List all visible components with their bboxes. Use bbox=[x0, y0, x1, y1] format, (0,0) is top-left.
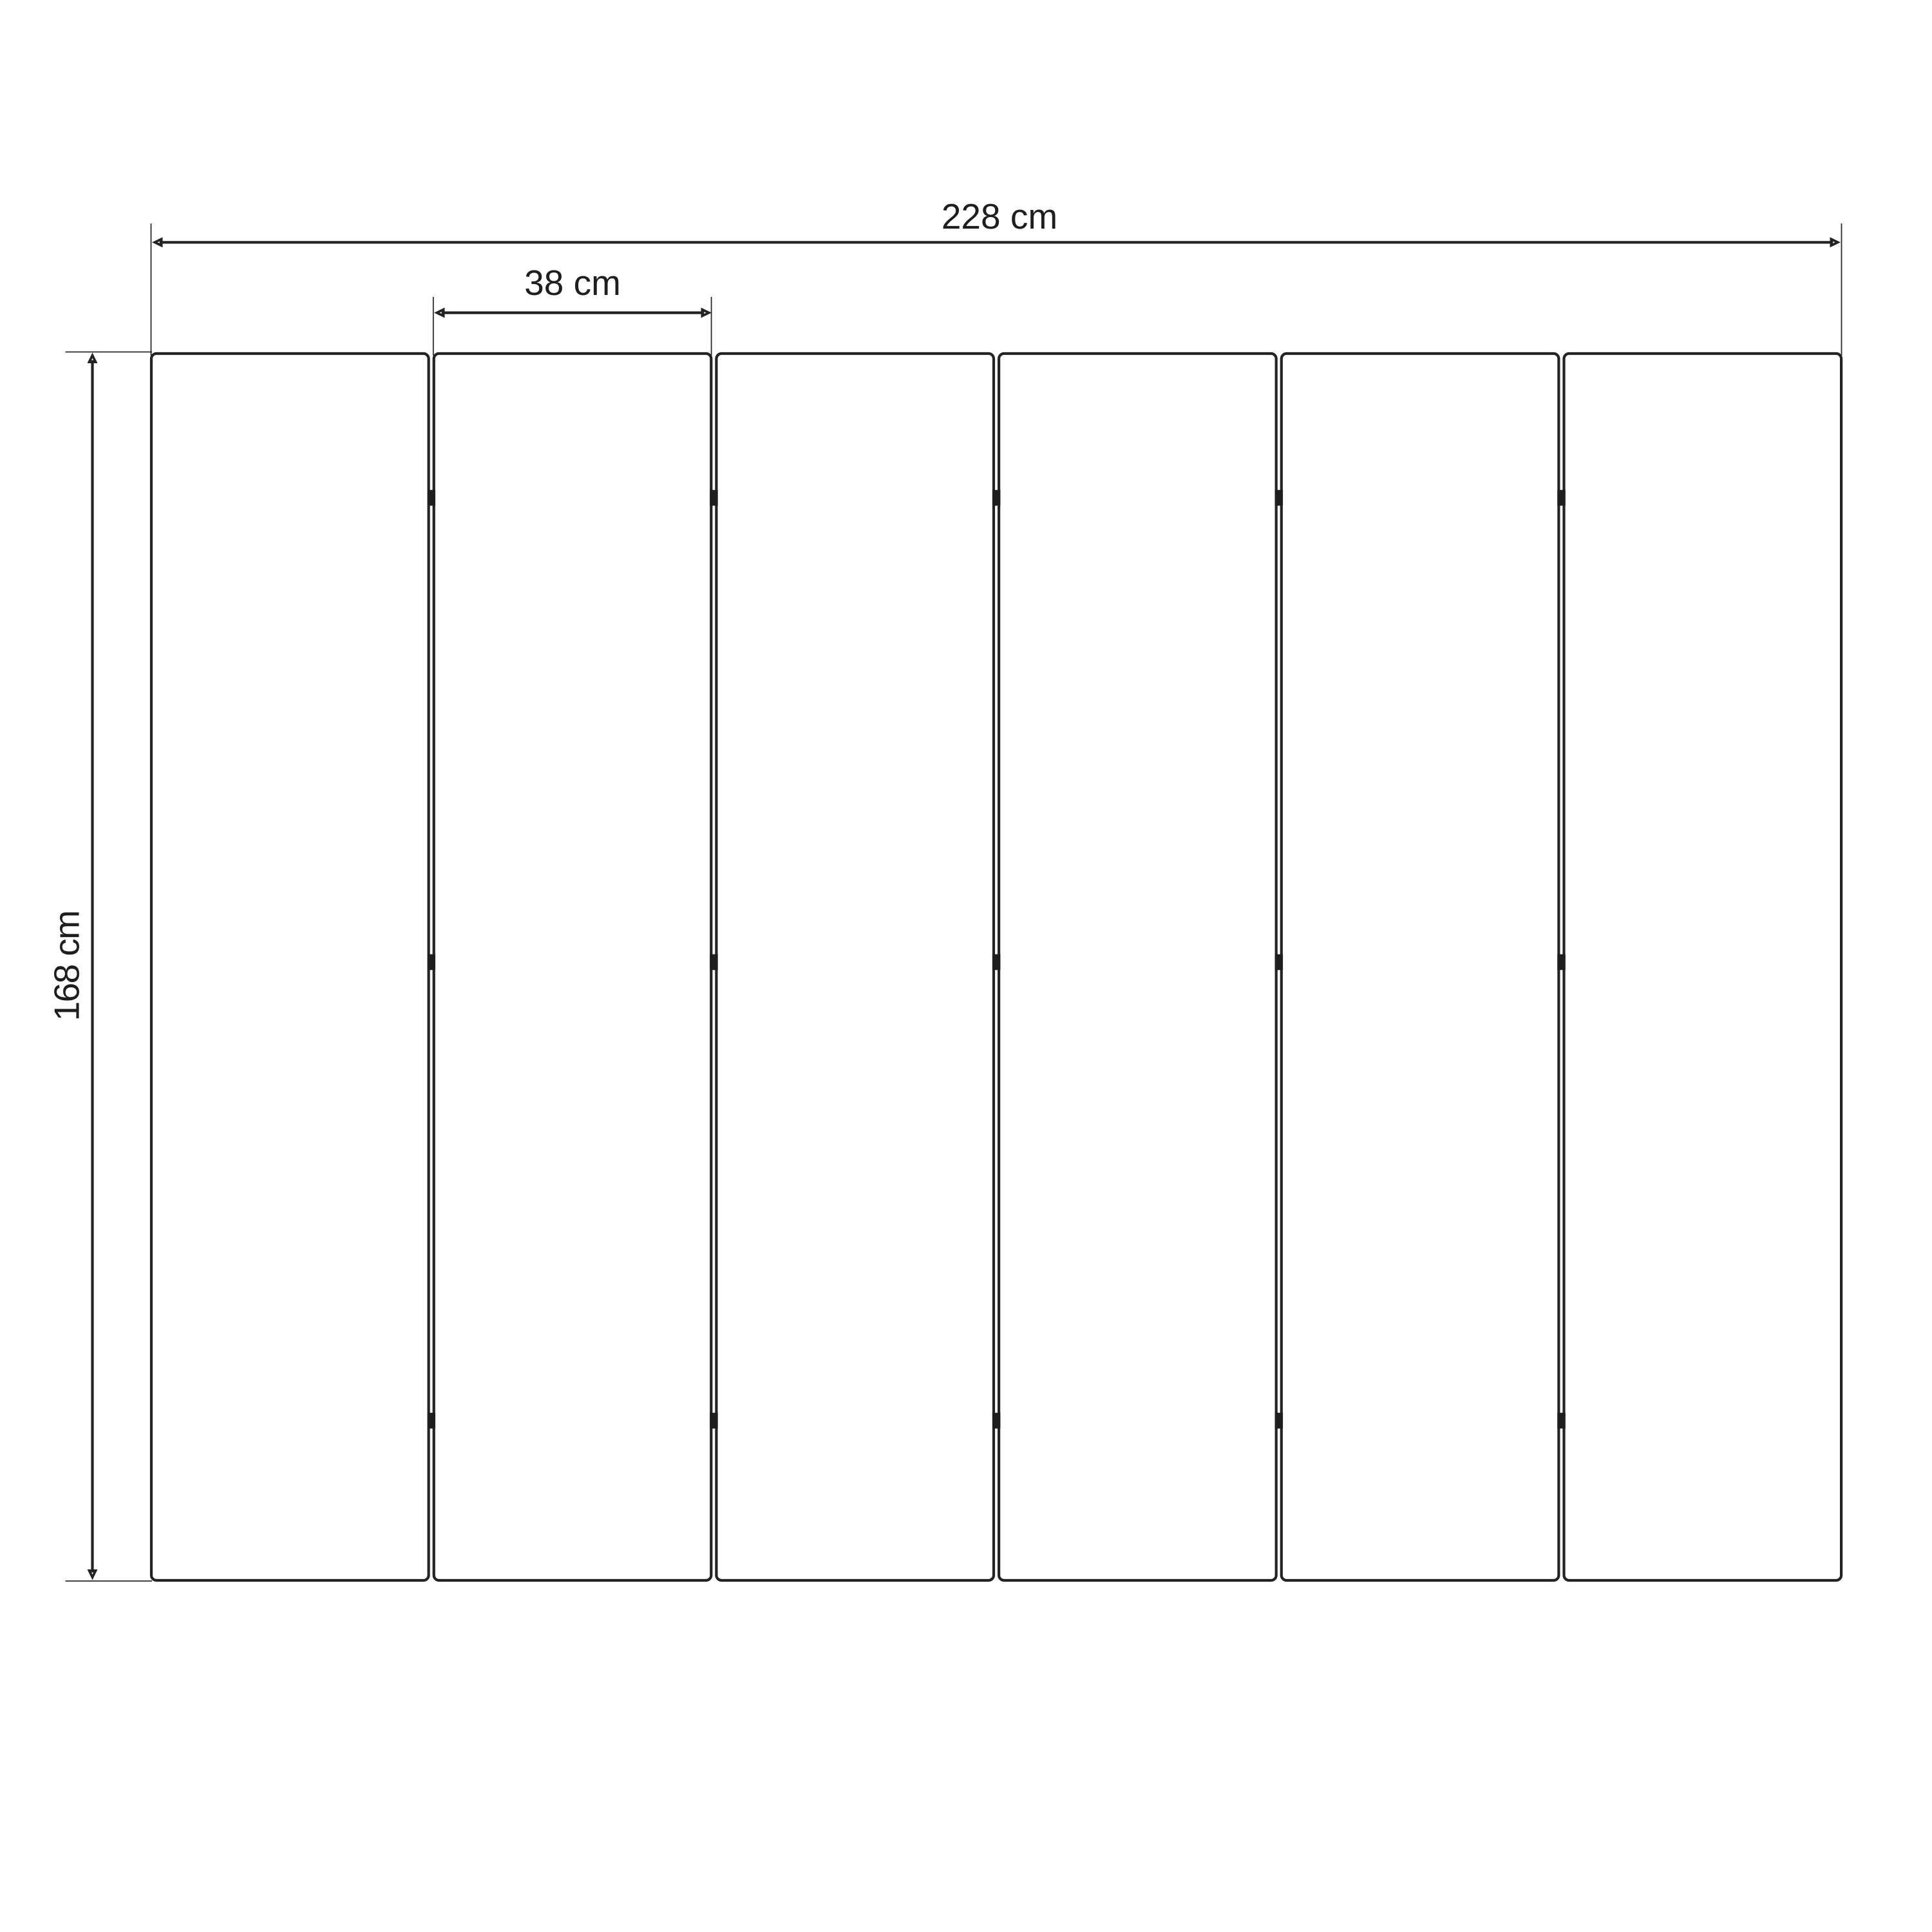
svg-text:38 cm: 38 cm bbox=[524, 263, 621, 303]
svg-text:168 cm: 168 cm bbox=[47, 911, 87, 1021]
svg-text:228 cm: 228 cm bbox=[942, 196, 1057, 236]
